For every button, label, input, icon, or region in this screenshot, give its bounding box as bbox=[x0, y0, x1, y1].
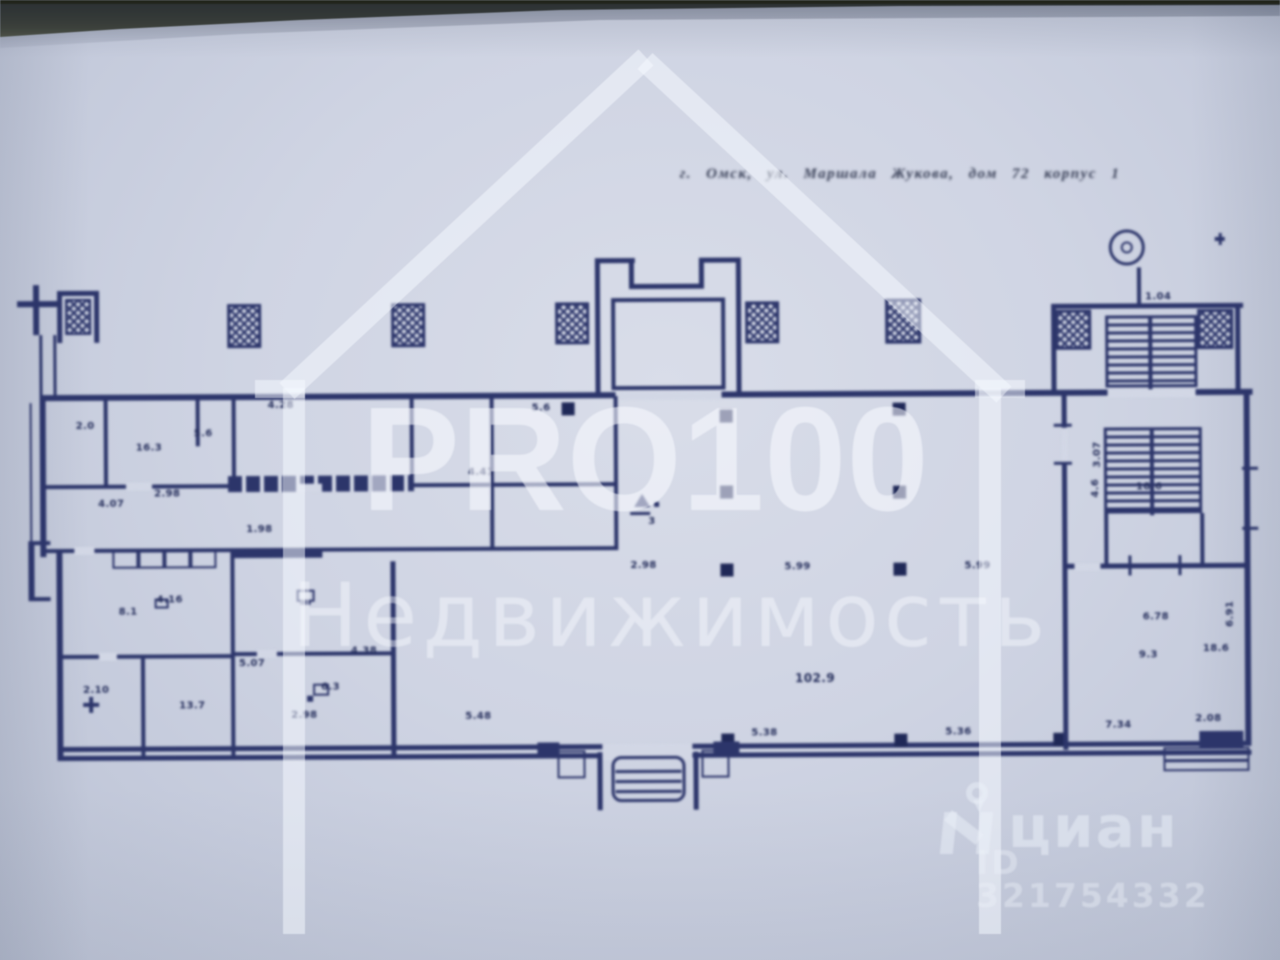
plan-annotation: 16.3 bbox=[136, 443, 162, 454]
plan-annotation: 9.3 bbox=[1139, 649, 1158, 660]
plan-annotation: 5.99 bbox=[784, 561, 810, 572]
plan-annotation: 7.34 bbox=[1105, 719, 1131, 730]
plan-annotation: 5.6 bbox=[194, 428, 213, 439]
plan-annotation: 13.7 bbox=[179, 700, 205, 711]
plan-annotation: 2.0 bbox=[76, 421, 95, 432]
plan-annotation: 3 bbox=[648, 516, 655, 527]
plan-annotation: 1.04 bbox=[1145, 291, 1171, 302]
plan-annotation: 2.08 bbox=[1195, 713, 1221, 724]
plan-annotation: 4.6 bbox=[1090, 479, 1101, 498]
plan-annotation: 2.10 bbox=[83, 685, 109, 696]
plan-annotation: 6.3 bbox=[321, 682, 340, 693]
plan-annotation: 5.99 bbox=[964, 560, 990, 571]
plan-annotation: 3.07 bbox=[1092, 441, 1103, 467]
plan-annotations: 4.2816.32.05.65.64.414.072.981.988.14.16… bbox=[0, 0, 1280, 960]
plan-annotation: 2.98 bbox=[291, 710, 317, 721]
plan-annotation: 2.98 bbox=[630, 560, 656, 571]
plan-annotation: 5.07 bbox=[239, 658, 265, 669]
plan-annotation: 18.6 bbox=[1136, 481, 1162, 492]
floor-plan-drawing: 4.2816.32.05.65.64.414.072.981.988.14.16… bbox=[0, 0, 1280, 960]
plan-annotation: 5.6 bbox=[532, 402, 551, 413]
photo-of-floor-plan: г. Омск, ул. Маршала Жукова, дом 72 корп… bbox=[0, 0, 1280, 960]
plan-annotation: 102.9 bbox=[795, 671, 835, 685]
plan-annotation: 4.28 bbox=[268, 400, 294, 411]
plan-annotation: 2.98 bbox=[154, 488, 180, 499]
plan-annotation: 6.78 bbox=[1143, 611, 1169, 622]
plan-annotation: 5.48 bbox=[465, 711, 491, 722]
plan-annotation: 6.91 bbox=[1225, 601, 1236, 627]
plan-annotation: 5.36 bbox=[945, 726, 971, 737]
plan-annotation: 18.6 bbox=[1203, 643, 1229, 654]
plan-annotation: 4.41 bbox=[468, 467, 494, 478]
plan-annotation: 4.07 bbox=[98, 499, 124, 510]
plan-annotation: 4.16 bbox=[157, 594, 183, 605]
plan-annotation: 1.98 bbox=[246, 524, 272, 535]
plan-annotation: 5.38 bbox=[751, 727, 777, 738]
plan-annotation: 4.38 bbox=[351, 645, 377, 656]
plan-annotation: 8.1 bbox=[119, 607, 138, 618]
